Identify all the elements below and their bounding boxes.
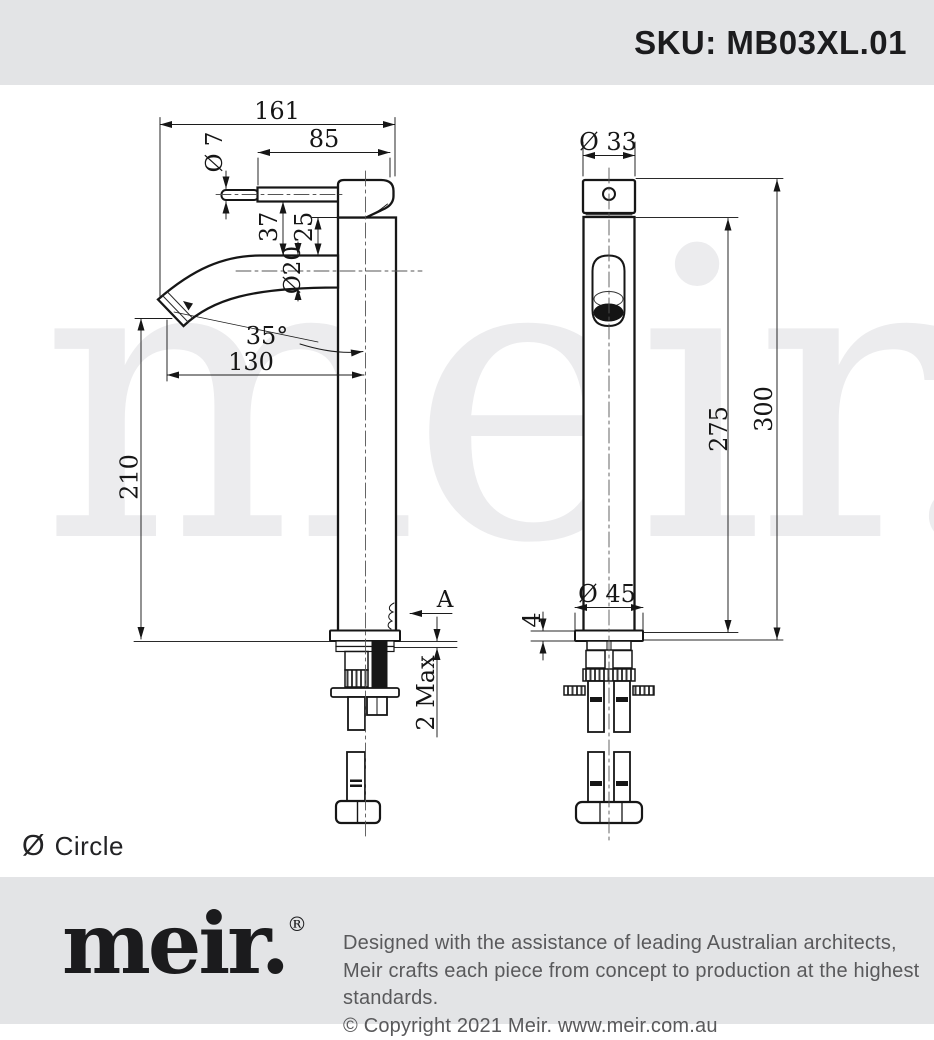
dim-33: Ø 33: [579, 128, 637, 176]
header-banner: SKU: MB03XL.01: [0, 0, 934, 85]
dim-45-label: Ø 45: [578, 580, 636, 608]
registered-mark: ®: [287, 882, 307, 966]
detail-callout-a: A: [410, 587, 454, 614]
dim-300: 300: [750, 180, 778, 640]
body-column: [338, 218, 396, 633]
dim-25-label: 25: [290, 212, 318, 243]
dim-275: 275: [705, 219, 733, 633]
hose-tail: [347, 752, 365, 802]
spout: [158, 256, 338, 327]
threaded-rod: [372, 641, 387, 690]
mount-wing-right: [633, 686, 654, 695]
front-view: Ø 33 275 300 Ø 45 4: [518, 128, 783, 840]
side-mount-hardware: [331, 641, 399, 823]
spout-opening: [594, 304, 624, 322]
technical-drawing: 161 85 Ø 7 37 25: [0, 0, 934, 1024]
dim-2max-label: 2 Max: [412, 655, 440, 731]
dim-4: 4: [518, 612, 546, 660]
footer-line-2: Meir crafts each piece from concept to p…: [343, 958, 934, 1013]
base-flange: [330, 631, 400, 642]
dim-33-label: Ø 33: [579, 128, 637, 156]
faucet-side-outline: [158, 180, 400, 641]
dim-7: Ø 7: [202, 132, 228, 219]
dim-7-label: Ø 7: [202, 132, 228, 173]
sku-label: SKU: MB03XL.01: [634, 24, 907, 62]
hose-right: [614, 752, 630, 803]
front-dimensions: Ø 33 275 300 Ø 45 4: [518, 128, 778, 660]
dim-300-label: 300: [750, 386, 778, 432]
shape-legend-label: Circle: [55, 831, 124, 862]
dim-20: Ø20: [280, 242, 306, 301]
detail-a-label: A: [436, 587, 454, 613]
side-view: 161 85 Ø 7 37 25: [116, 97, 458, 838]
meir-logo-text: meir.: [62, 894, 287, 993]
dim-275-label: 275: [705, 406, 733, 452]
dim-37-label: 37: [255, 212, 283, 243]
lever-pin: [222, 190, 259, 200]
dim-130-label: 130: [228, 348, 274, 376]
dim-161-label: 161: [254, 97, 300, 125]
diameter-symbol: Ø: [22, 830, 45, 863]
dim-210-label: 210: [116, 454, 144, 500]
shape-legend: Ø Circle: [22, 830, 124, 863]
dim-210: 210: [116, 319, 173, 640]
hose-left: [588, 752, 604, 803]
dim-4-label: 4: [518, 612, 546, 627]
front-ref-lines: [531, 179, 783, 642]
dim-37: 37: [255, 202, 283, 256]
dim-85: 85: [258, 125, 390, 185]
dim-20-label: Ø20: [280, 246, 306, 294]
footer-line-3: © Copyright 2021 Meir. www.meir.com.au: [343, 1013, 934, 1040]
meir-logo: meir.®: [62, 902, 307, 1008]
mount-wing-left: [564, 686, 585, 695]
footer-line-1: Designed with the assistance of leading …: [343, 930, 934, 958]
dim-35-label: 35°: [246, 322, 289, 350]
footer: meir.® Designed with the assistance of l…: [0, 877, 934, 1024]
bench-lines: [134, 642, 457, 648]
dim-2max: 2 Max: [412, 617, 440, 737]
dim-85-label: 85: [309, 125, 340, 153]
